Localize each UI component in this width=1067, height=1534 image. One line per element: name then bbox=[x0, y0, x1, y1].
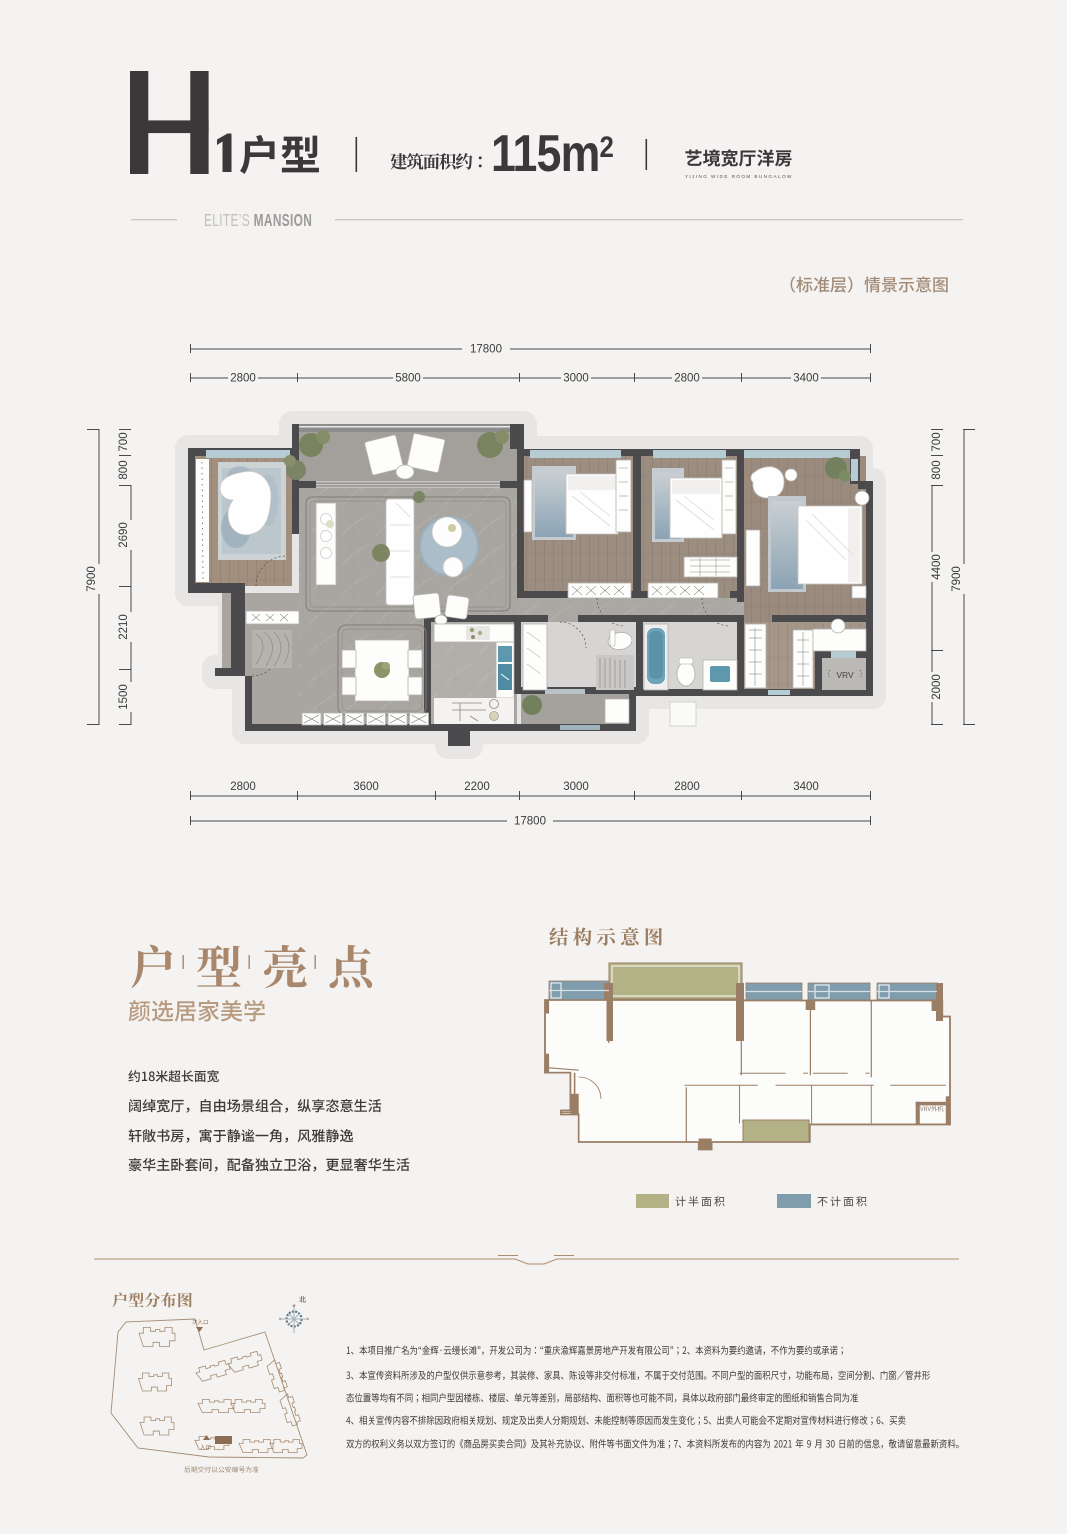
svg-text:YIJING WIDE ROOM BUNGALOW: YIJING WIDE ROOM BUNGALOW bbox=[685, 174, 793, 179]
svg-text:700: 700 bbox=[118, 432, 130, 451]
svg-text:17800: 17800 bbox=[514, 816, 546, 828]
svg-text:2000: 2000 bbox=[931, 674, 943, 700]
svg-text:3000: 3000 bbox=[563, 373, 589, 385]
svg-text:2690: 2690 bbox=[118, 522, 130, 548]
svg-text:2800: 2800 bbox=[230, 373, 256, 385]
svg-text:3400: 3400 bbox=[793, 781, 819, 793]
svg-text:VRV: VRV bbox=[836, 670, 854, 680]
svg-text:5800: 5800 bbox=[395, 373, 421, 385]
svg-text:4400: 4400 bbox=[931, 554, 943, 580]
svg-text:3600: 3600 bbox=[353, 781, 379, 793]
svg-text:3000: 3000 bbox=[563, 781, 589, 793]
svg-text:2210: 2210 bbox=[118, 614, 130, 640]
svg-text:2800: 2800 bbox=[674, 373, 700, 385]
svg-text:2200: 2200 bbox=[464, 781, 490, 793]
svg-text:ELITE’S MANSION: ELITE’S MANSION bbox=[204, 211, 312, 231]
svg-text:3400: 3400 bbox=[793, 373, 819, 385]
svg-text:1500: 1500 bbox=[118, 684, 130, 710]
svg-text:7900: 7900 bbox=[86, 566, 98, 592]
svg-text:17800: 17800 bbox=[470, 344, 502, 356]
svg-text:7900: 7900 bbox=[951, 566, 963, 592]
svg-text:2800: 2800 bbox=[230, 781, 256, 793]
svg-text:700: 700 bbox=[931, 432, 943, 451]
svg-text:800: 800 bbox=[118, 460, 130, 479]
svg-text:800: 800 bbox=[931, 460, 943, 479]
svg-text:2800: 2800 bbox=[674, 781, 700, 793]
